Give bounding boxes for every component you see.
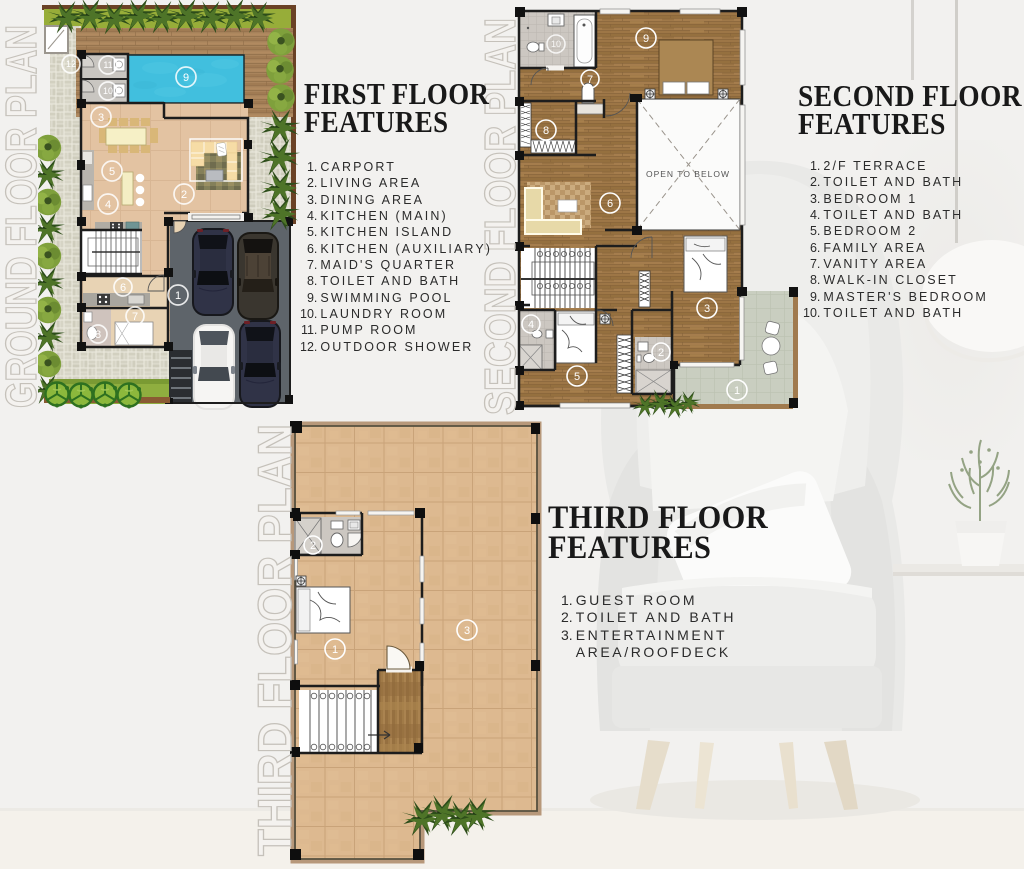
svg-text:GROUND FLOOR PLAN: GROUND FLOOR PLAN	[0, 25, 46, 408]
svg-text:THIRD FLOOR PLAN: THIRD FLOOR PLAN	[248, 424, 301, 856]
